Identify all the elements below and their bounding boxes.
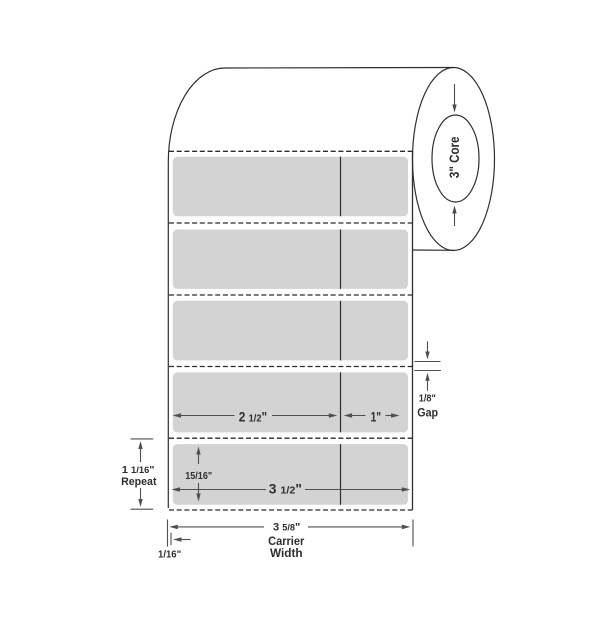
svg-text:1/8": 1/8"	[419, 393, 436, 405]
svg-text:Width: Width	[270, 546, 303, 560]
svg-text:15/16": 15/16"	[185, 470, 212, 482]
svg-text:Repeat: Repeat	[121, 476, 157, 488]
svg-text:3" Core: 3" Core	[446, 136, 462, 178]
svg-text:Gap: Gap	[417, 406, 438, 420]
svg-text:1 1/16": 1 1/16"	[122, 464, 155, 476]
svg-text:1/16": 1/16"	[158, 549, 181, 561]
svg-text:1": 1"	[371, 409, 381, 424]
svg-text:3 1/2": 3 1/2"	[269, 482, 302, 497]
svg-text:3 5/8": 3 5/8"	[273, 522, 300, 534]
svg-text:2 1/2": 2 1/2"	[239, 409, 267, 424]
